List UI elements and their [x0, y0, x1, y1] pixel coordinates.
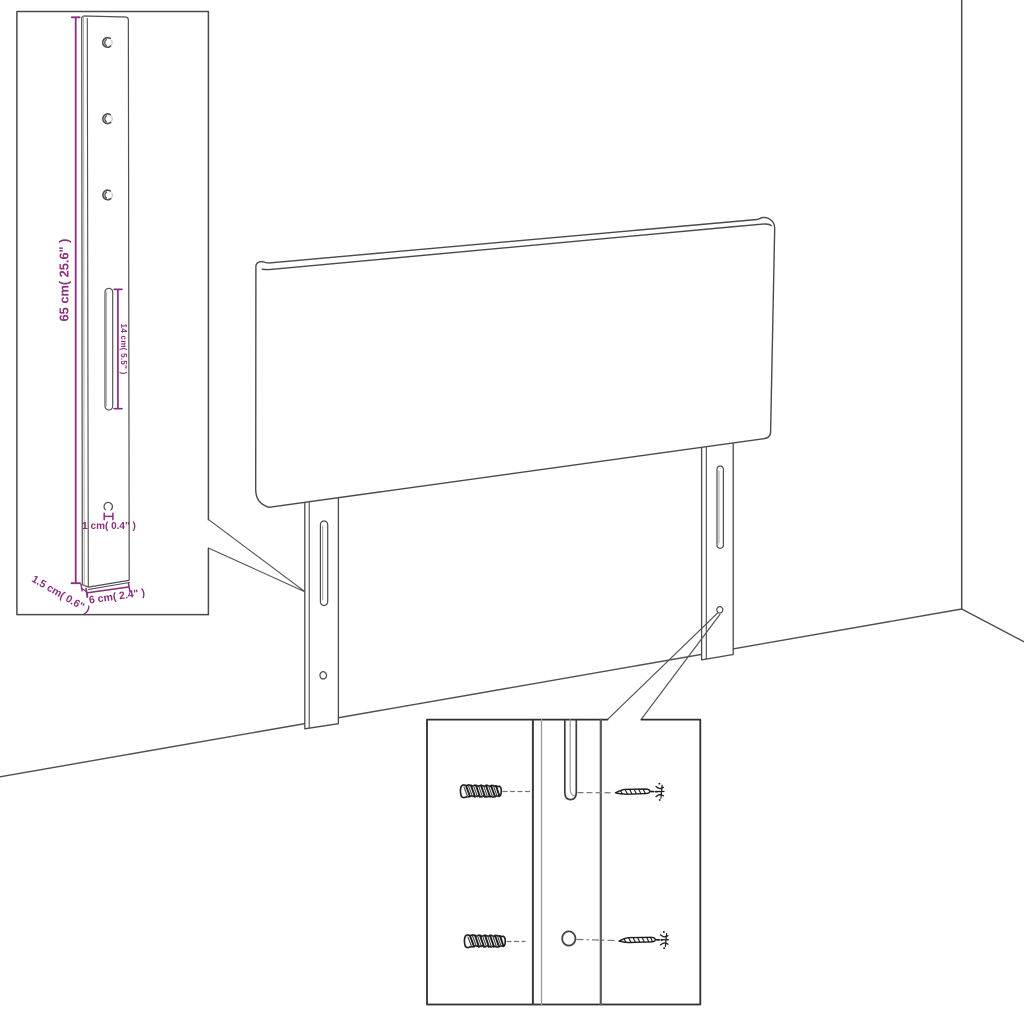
svg-text:14 cm( 5.5" ): 14 cm( 5.5" ) [119, 323, 128, 374]
svg-text:1 cm( 0.4" ): 1 cm( 0.4" ) [82, 521, 136, 532]
svg-text:65 cm( 25.6" ): 65 cm( 25.6" ) [56, 239, 71, 322]
